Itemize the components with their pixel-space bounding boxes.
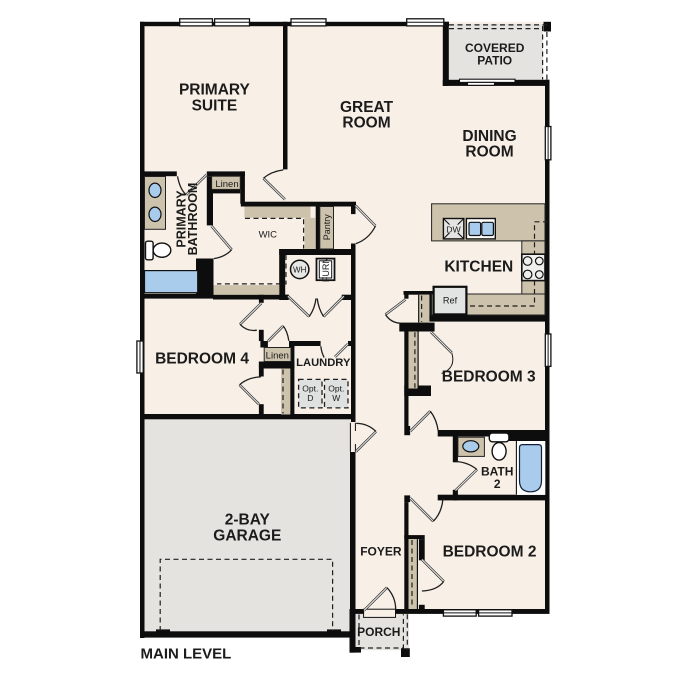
svg-text:W: W [332,393,340,403]
svg-text:GARAGE: GARAGE [213,527,281,544]
svg-text:KITCHEN: KITCHEN [444,259,513,276]
svg-text:Linen: Linen [215,179,238,190]
svg-text:PRIMARY: PRIMARY [179,82,251,99]
svg-text:PATIO: PATIO [477,54,512,68]
svg-text:MAIN LEVEL: MAIN LEVEL [141,646,232,663]
svg-text:BEDROOM 4: BEDROOM 4 [155,351,249,368]
svg-text:2: 2 [494,477,501,491]
svg-text:WIC: WIC [259,229,278,240]
svg-text:D: D [307,393,313,403]
svg-text:ROOM: ROOM [342,114,390,131]
svg-text:LAUNDRY: LAUNDRY [296,357,351,369]
svg-text:ROOM: ROOM [465,144,513,161]
svg-text:FOYER: FOYER [360,545,402,559]
svg-text:2-BAY: 2-BAY [225,512,271,529]
svg-text:Opt.: Opt. [302,383,318,393]
svg-text:Pantry: Pantry [322,214,332,241]
svg-text:WH: WH [293,265,307,274]
svg-text:Linen: Linen [266,350,289,361]
svg-text:BEDROOM 3: BEDROOM 3 [442,369,536,386]
svg-text:PORCH: PORCH [357,625,400,639]
svg-text:DW: DW [446,225,461,235]
svg-text:SUITE: SUITE [192,98,238,115]
svg-text:Opt.: Opt. [328,383,344,393]
svg-text:FURN: FURN [321,257,331,282]
svg-text:Ref: Ref [443,296,458,306]
svg-text:DINING: DINING [462,128,516,145]
svg-text:BATHROOM: BATHROOM [186,183,200,256]
svg-text:BEDROOM 2: BEDROOM 2 [443,544,537,561]
